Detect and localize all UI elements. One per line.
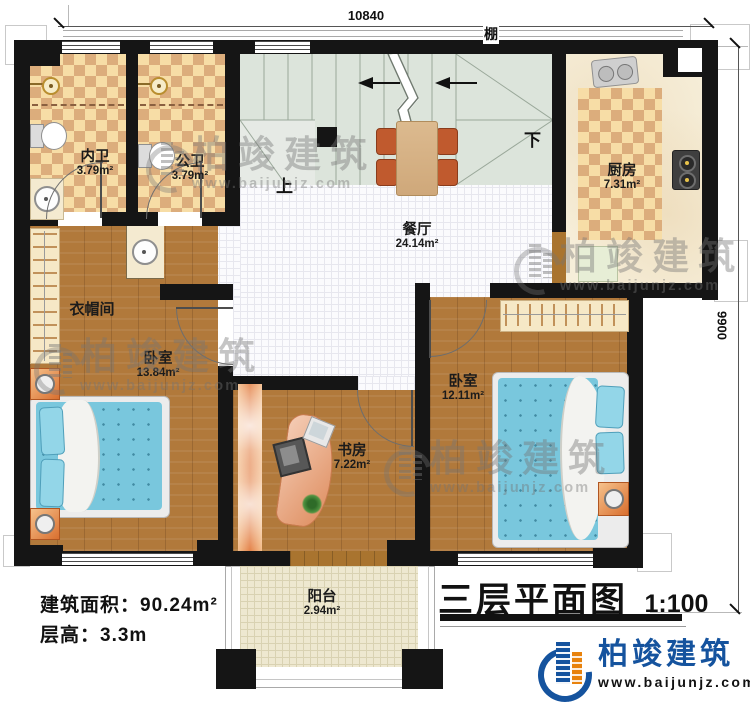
- balcony-pillar-right: [402, 649, 443, 689]
- toilet-icon-1: [41, 122, 67, 150]
- wall-bottom-study-right: [387, 540, 430, 566]
- kitchen-doorway-threshold: [552, 232, 566, 283]
- hanger-bars: [505, 304, 624, 326]
- room-area: 7.31m²: [604, 179, 640, 192]
- study-door-leaf: [411, 390, 413, 446]
- canopy-line-1: [63, 30, 683, 31]
- balcony-doorway-threshold: [290, 551, 387, 566]
- title-underline-thick: [440, 614, 682, 621]
- room-area: 2.94m²: [304, 605, 340, 618]
- canopy-label: 棚: [483, 24, 499, 44]
- logo-building-orange: [572, 652, 582, 684]
- lamp-icon: [35, 514, 55, 534]
- brand-logo-icon: [538, 638, 592, 696]
- room-label-dining: 餐厅 24.14m²: [396, 222, 439, 251]
- room-area: 7.22m²: [334, 459, 370, 472]
- room-area: 13.84m²: [137, 367, 180, 380]
- burner: [679, 172, 696, 189]
- room-label-bedroom-left: 卧室 13.84m²: [137, 351, 180, 380]
- burner-flame: [685, 161, 689, 165]
- wall-stairs-post: [317, 127, 337, 147]
- hanger-rail: [44, 231, 45, 361]
- curtain-line-1: [32, 104, 124, 106]
- floor-height-text: 层高：3.3m: [40, 620, 147, 647]
- brand-url: www.baijunjz.com: [598, 674, 750, 690]
- wall-bedroom-right-top-b: [490, 283, 552, 298]
- room-name: 餐厅: [396, 222, 439, 238]
- chair: [376, 159, 398, 186]
- room-name: 厨房: [604, 163, 640, 179]
- brand-logo: 柏竣建筑 www.baijunjz.com: [538, 638, 750, 696]
- room-name: 内卫: [77, 149, 113, 165]
- lamp-icon: [35, 374, 55, 394]
- bedroom-right-door-leaf: [429, 300, 431, 358]
- room-name: 公卫: [172, 154, 208, 170]
- bedroom-right-wardrobe: [500, 300, 629, 332]
- chair: [436, 159, 458, 186]
- room-name: 卧室: [442, 374, 484, 390]
- hanger-bars: [33, 233, 57, 359]
- wall-bath-stairs: [225, 54, 240, 226]
- balcony-pillar-left: [216, 649, 256, 689]
- logo-building-blue: [556, 642, 570, 684]
- corridor-floor: [233, 297, 415, 376]
- room-label-balcony: 阳台 2.94m²: [304, 589, 340, 618]
- shower-head-icon-2: [150, 77, 168, 95]
- fridge: [578, 246, 618, 282]
- basin-drain: [44, 197, 48, 201]
- study-doorway-floor: [358, 376, 415, 390]
- room-area: 12.11m²: [442, 390, 484, 403]
- shower-dot: [49, 84, 53, 88]
- dining-table: [396, 121, 438, 196]
- burner: [679, 155, 696, 172]
- wall-bedroom-left-top: [160, 284, 233, 300]
- brand-text-block: 柏竣建筑 www.baijunjz.com: [598, 638, 750, 696]
- room-area: 24.14m²: [396, 238, 439, 251]
- window-top-3: [255, 41, 310, 53]
- shower-dot: [157, 84, 161, 88]
- bed-left-blanket: [58, 400, 100, 512]
- flue-shaft: [678, 48, 702, 72]
- nightstand-left-1: [30, 368, 60, 400]
- room-label-study: 书房 7.22m²: [334, 443, 370, 472]
- room-name: 衣帽间: [69, 302, 114, 319]
- pillow: [595, 385, 625, 428]
- wall-bottom-study-left: [193, 551, 290, 566]
- nightstand-left-2: [30, 508, 60, 540]
- pillow: [39, 459, 65, 508]
- wall-bedroom-right-top-a: [415, 283, 430, 298]
- stairs-up-label: 上: [276, 172, 293, 197]
- chair: [376, 128, 398, 155]
- room-area: 3.79m²: [172, 170, 208, 183]
- wall-study-bedroom-right: [415, 297, 430, 551]
- window-bottom-right: [458, 553, 593, 565]
- pillow: [595, 432, 624, 475]
- basin-drain: [142, 250, 146, 254]
- window-bottom-left: [62, 553, 193, 565]
- stove-icon: [672, 150, 700, 190]
- plant-icon: [302, 494, 322, 514]
- building-area-text: 建筑面积：90.24m²: [40, 590, 218, 617]
- room-label-public-bath: 公卫 3.79m²: [172, 154, 208, 183]
- room-label-bedroom-right: 卧室 12.11m²: [442, 374, 484, 403]
- bedroom-left-door-leaf: [176, 307, 233, 309]
- room-label-cloakroom: 衣帽间: [69, 302, 114, 319]
- monitor-screen: [280, 445, 300, 466]
- wall-bath-divider: [126, 54, 138, 226]
- room-label-inner-bath: 内卫 3.79m²: [77, 149, 113, 178]
- kitchen-sink-icon: [591, 56, 640, 89]
- room-name: 卧室: [137, 351, 180, 367]
- wall-corner-bl: [14, 545, 63, 566]
- dim-line-top: [58, 26, 712, 27]
- wall-right-lower: [627, 297, 643, 568]
- room-area: 3.79m²: [77, 165, 113, 178]
- wall-bedroom-left-right: [218, 366, 233, 551]
- curtain-line-2: [140, 104, 223, 106]
- nightstand-right: [598, 482, 629, 516]
- dim-height-label: 9900: [715, 304, 730, 348]
- title-underline-thin: [440, 626, 686, 627]
- brand-name: 柏竣建筑: [598, 638, 750, 671]
- pillow: [39, 406, 65, 455]
- floor-plan: 10840 9900 棚 内卫 3.79m² 公卫 3.79m² 厨房 7.31…: [0, 0, 750, 707]
- chair: [436, 128, 458, 155]
- lamp-icon: [604, 489, 624, 509]
- stairs-down-label: 下: [524, 126, 541, 151]
- dim-extension: [68, 5, 69, 26]
- laptop-screen: [308, 421, 328, 440]
- sink-bowl: [597, 65, 615, 83]
- canopy-line-2: [63, 36, 683, 37]
- study-cabinet: [238, 384, 262, 551]
- sink-bowl: [616, 63, 634, 81]
- basin-icon-2: [132, 239, 158, 265]
- shower-head-icon-1: [42, 77, 60, 95]
- hanger-rail: [503, 314, 626, 315]
- wall-corner-br: [593, 548, 643, 568]
- wall-corner-tl: [14, 40, 60, 66]
- dim-line-right: [738, 46, 739, 612]
- wall-right-upper: [702, 40, 718, 300]
- wall-kitchen-left: [552, 54, 566, 232]
- burner-flame: [685, 178, 689, 182]
- room-name: 书房: [334, 443, 370, 459]
- window-top-1: [62, 41, 120, 53]
- room-label-kitchen: 厨房 7.31m²: [604, 163, 640, 192]
- witness-box: [714, 240, 748, 302]
- wall-bath-bottom-3: [202, 212, 240, 226]
- window-top-2: [150, 41, 213, 53]
- cloakroom-wardrobe: [30, 228, 60, 364]
- room-name: 阳台: [304, 589, 340, 605]
- wall-below-kitchen: [540, 283, 718, 298]
- dim-width-label: 10840: [336, 8, 396, 23]
